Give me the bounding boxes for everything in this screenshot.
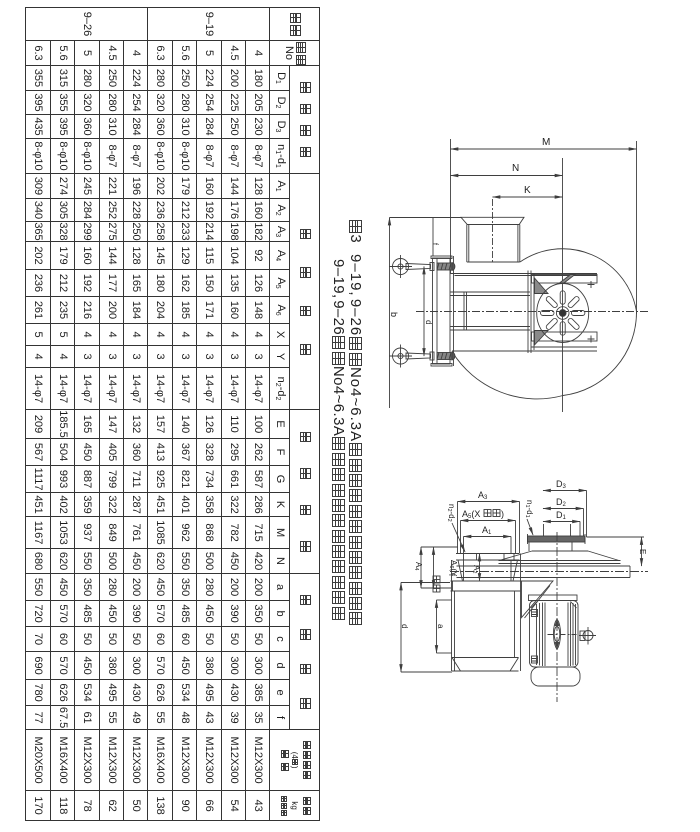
svg-text:A5(X: A5(X [462,509,480,520]
svg-text:D1: D1 [556,510,567,521]
svg-text:n2-d2: n2-d2 [446,504,456,522]
svg-text:A3: A3 [478,490,488,501]
svg-text:a: a [436,624,445,629]
svg-text:D2: D2 [556,497,567,508]
svg-text:d: d [400,624,409,628]
svg-text:N: N [512,163,519,174]
svg-text:f: f [431,243,438,245]
svg-text:): ) [501,509,504,519]
svg-text:d: d [424,320,433,324]
svg-text:A4: A4 [413,562,423,570]
svg-text:K: K [524,185,531,196]
svg-text:A1: A1 [482,525,492,536]
svg-text:E: E [638,549,647,554]
svg-text:n1-d1: n1-d1 [524,500,534,518]
svg-text:M: M [542,137,550,148]
svg-text:b: b [389,312,399,317]
svg-text:D3: D3 [556,479,567,490]
svg-text:A6(Y: A6(Y [448,560,458,577]
